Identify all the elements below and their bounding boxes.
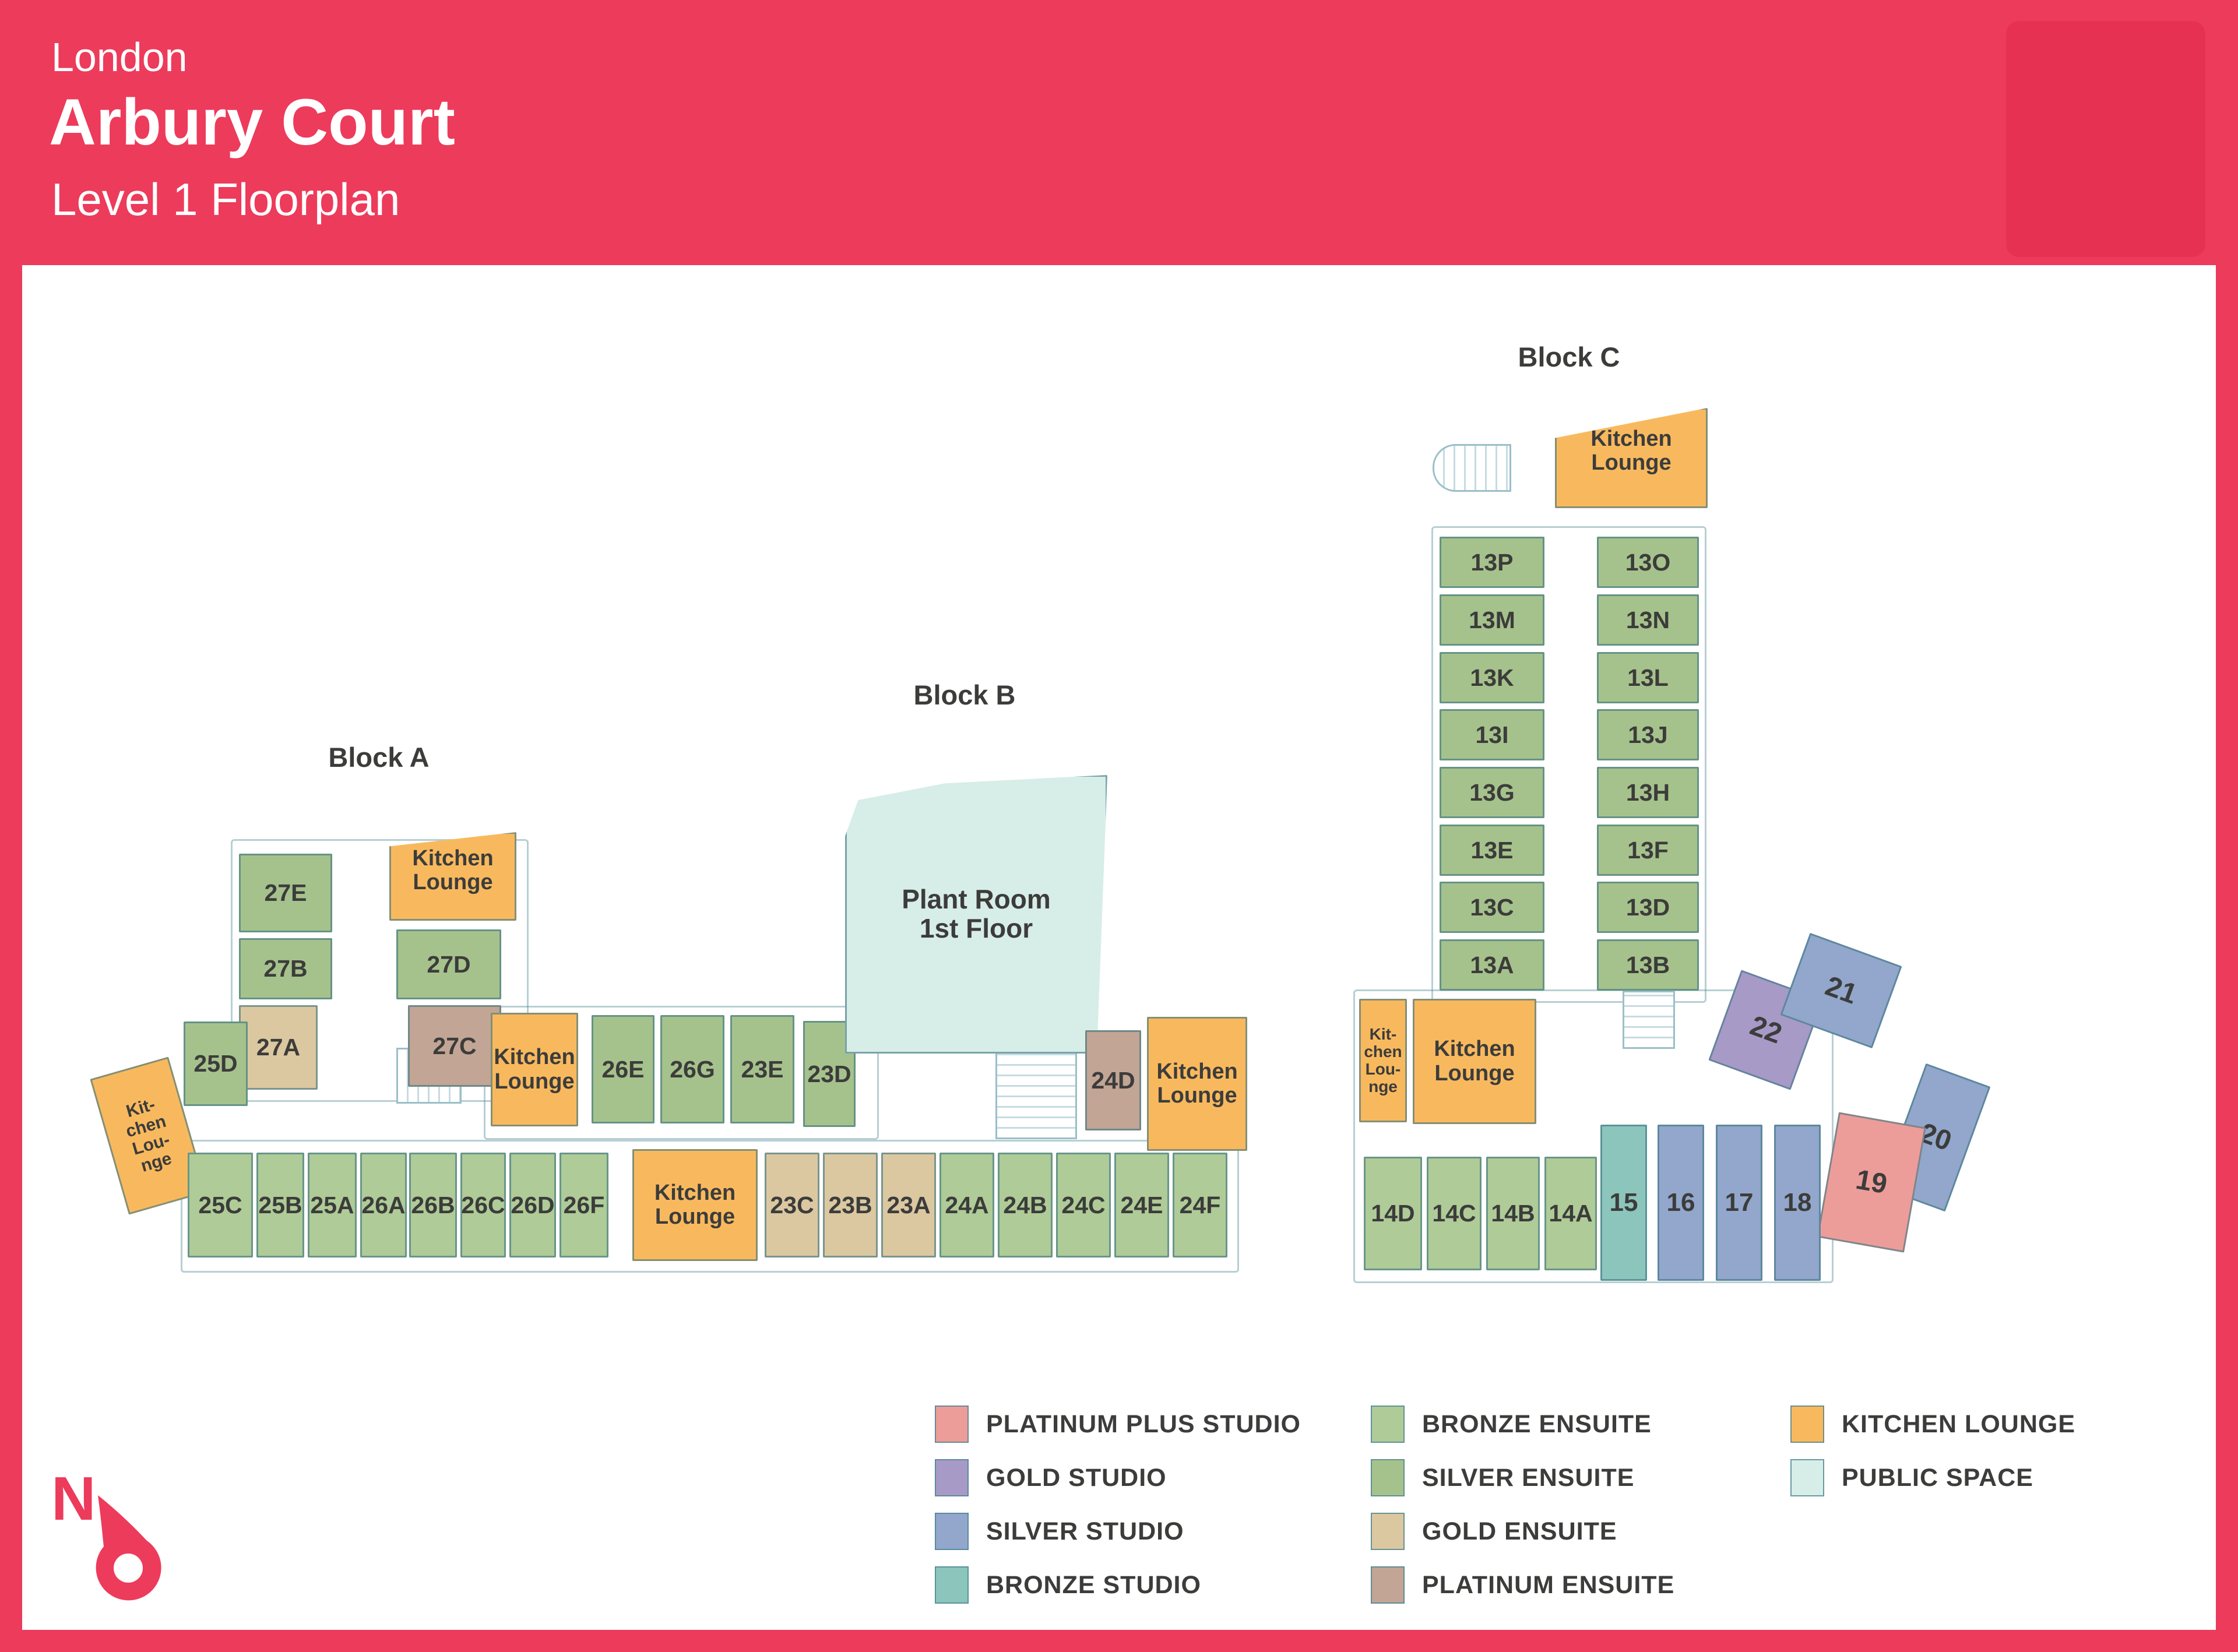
room-13G: 13G [1440,767,1544,818]
legend-item-gold_ensuite: GOLD ENSUITE [1371,1513,1674,1550]
room-13L: 13L [1597,652,1699,703]
header-band: London Arbury Court Level 1 Floorplan [0,0,2238,265]
room-24A: 24A [939,1153,994,1258]
room-23C: 23C [765,1153,819,1258]
room-13I: 13I [1440,709,1544,760]
room-26E: 26E [592,1015,654,1123]
legend-item-silver_studio: SILVER STUDIO [935,1513,1301,1550]
legend-item-bronze_ensuite: BRONZE ENSUITE [1371,1406,1674,1443]
room-13A: 13A [1440,939,1544,991]
room-plant: Plant Room 1st Floor [845,775,1107,1054]
legend-item-gold_studio: GOLD STUDIO [935,1459,1301,1496]
room-24F: 24F [1173,1153,1227,1258]
legend-label: PUBLIC SPACE [1842,1464,2033,1492]
legend-swatch-kitchen_lounge [1790,1406,1824,1443]
legend-column-3: KITCHEN LOUNGEPUBLIC SPACE [1790,1406,2075,1513]
room-25B: 25B [256,1153,304,1258]
stairs-block-b [995,1052,1077,1139]
legend-label: SILVER ENSUITE [1422,1464,1634,1492]
room-13D: 13D [1597,882,1699,933]
room-13K: 13K [1440,652,1544,703]
room-13M: 13M [1440,594,1544,646]
room-13C: 13C [1440,882,1544,933]
legend-swatch-bronze_studio [935,1566,969,1604]
stairs-block-c-top [1433,444,1511,492]
legend-label: BRONZE ENSUITE [1422,1410,1652,1439]
room-13J: 13J [1597,709,1699,760]
room-13F: 13F [1597,825,1699,876]
room-kl_a_mid: Kitchen Lounge [491,1013,578,1126]
room-14B: 14B [1486,1157,1540,1270]
room-24C: 24C [1056,1153,1111,1258]
room-14A: 14A [1544,1157,1597,1270]
room-24D: 24D [1085,1030,1141,1130]
room-kl_c_top: Kitchen Lounge [1555,408,1708,508]
legend-item-kitchen_lounge: KITCHEN LOUNGE [1790,1406,2075,1443]
room-26C: 26C [460,1153,506,1258]
legend-label: PLATINUM ENSUITE [1422,1571,1674,1600]
room-23E: 23E [730,1015,794,1123]
page-border-right [2216,265,2238,1652]
page-border-bottom [0,1630,2238,1652]
room-27B: 27B [239,938,332,999]
room-25A: 25A [308,1153,357,1258]
header-city: London [51,35,188,80]
room-23B: 23B [823,1153,878,1258]
room-27C: 27C [408,1005,501,1087]
room-16: 16 [1658,1125,1704,1281]
room-23A: 23A [881,1153,936,1258]
block-a-label: Block A [286,741,472,773]
page-subtitle: Level 1 Floorplan [51,175,400,225]
stairs-block-c-bottom [1623,991,1675,1049]
legend-label: GOLD ENSUITE [1422,1517,1617,1546]
room-27D: 27D [396,929,501,999]
legend-label: SILVER STUDIO [986,1517,1184,1546]
room-13H: 13H [1597,767,1699,818]
room-27A: 27A [239,1005,318,1090]
legend-swatch-platinum_plus_studio [935,1406,969,1443]
room-26F: 26F [559,1153,608,1258]
page-border-left [0,265,22,1652]
floorplan-page: London Arbury Court Level 1 Floorplan Bl… [0,0,2238,1652]
legend-swatch-platinum_ensuite [1371,1566,1405,1604]
legend-swatch-silver_ensuite [1371,1459,1405,1496]
legend-swatch-gold_ensuite [1371,1513,1405,1550]
legend-item-bronze_studio: BRONZE STUDIO [935,1566,1301,1604]
room-18: 18 [1774,1125,1821,1281]
legend-label: PLATINUM PLUS STUDIO [986,1410,1301,1439]
room-24E: 24E [1114,1153,1169,1258]
legend-column-2: BRONZE ENSUITESILVER ENSUITEGOLD ENSUITE… [1371,1406,1674,1620]
legend-item-platinum_ensuite: PLATINUM ENSUITE [1371,1566,1674,1604]
room-14D: 14D [1364,1157,1422,1270]
room-13E: 13E [1440,825,1544,876]
legend-label: GOLD STUDIO [986,1464,1167,1492]
room-kl_b: Kitchen Lounge [1147,1017,1247,1151]
room-kl_a_top: Kitchen Lounge [389,832,516,921]
legend-item-platinum_plus_studio: PLATINUM PLUS STUDIO [935,1406,1301,1443]
legend-item-silver_ensuite: SILVER ENSUITE [1371,1459,1674,1496]
room-14C: 14C [1427,1157,1482,1270]
room-13B: 13B [1597,939,1699,991]
room-13N: 13N [1597,594,1699,646]
legend-label: KITCHEN LOUNGE [1842,1410,2075,1439]
legend-swatch-silver_studio [935,1513,969,1550]
room-25C: 25C [188,1153,253,1258]
room-17: 17 [1716,1125,1762,1281]
legend-swatch-bronze_ensuite [1371,1406,1405,1443]
header-corner-chip [2006,21,2205,257]
room-25D: 25D [184,1022,248,1106]
room-24B: 24B [998,1153,1053,1258]
block-c-label: Block C [1476,341,1662,373]
room-13O: 13O [1597,537,1699,588]
room-26D: 26D [509,1153,556,1258]
legend-item-public_space: PUBLIC SPACE [1790,1459,2075,1496]
room-26B: 26B [409,1153,457,1258]
room-27E: 27E [239,854,332,932]
legend-swatch-gold_studio [935,1459,969,1496]
room-26A: 26A [360,1153,407,1258]
legend-swatch-public_space [1790,1459,1824,1496]
legend-label: BRONZE STUDIO [986,1571,1201,1600]
room-kl_c_main: Kitchen Lounge [1413,999,1536,1124]
room-26G: 26G [660,1015,724,1123]
block-b-label: Block B [871,679,1058,711]
page-title: Arbury Court [49,86,455,158]
room-13P: 13P [1440,537,1544,588]
room-kl_c_narrow: Kit- chen Lou- nge [1359,999,1407,1122]
room-kl_a_bottom: Kitchen Lounge [632,1149,758,1261]
room-15: 15 [1600,1125,1647,1281]
north-pointer-icon [82,1489,198,1612]
legend-column-1: PLATINUM PLUS STUDIOGOLD STUDIOSILVER ST… [935,1406,1301,1620]
